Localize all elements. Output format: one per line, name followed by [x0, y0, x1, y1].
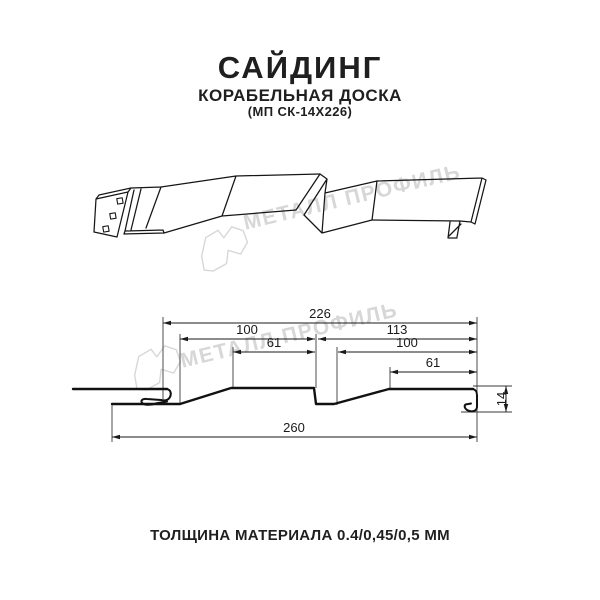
dim-label-14: 14 [494, 392, 509, 406]
dim-label-100-left: 100 [236, 322, 258, 337]
profile-section-view: 226 100 113 61 100 61 260 14 [73, 306, 512, 442]
section-profile-outline [73, 388, 477, 411]
dimension-lines [112, 323, 506, 437]
dim-label-61-right: 61 [426, 355, 440, 370]
extension-lines [112, 317, 512, 442]
product-drawing-page: САЙДИНГ КОРАБЕЛЬНАЯ ДОСКА (МП СК-14Х226)… [0, 0, 600, 600]
dim-label-226: 226 [309, 306, 331, 321]
dim-label-100-right: 100 [396, 335, 418, 350]
profile-3d-view [94, 174, 486, 238]
dim-label-260: 260 [283, 420, 305, 435]
technical-drawing: 226 100 113 61 100 61 260 14 [0, 0, 600, 600]
dim-label-61-left: 61 [267, 335, 281, 350]
thickness-note: ТОЛЩИНА МАТЕРИАЛА 0.4/0,45/0,5 ММ [0, 527, 600, 544]
